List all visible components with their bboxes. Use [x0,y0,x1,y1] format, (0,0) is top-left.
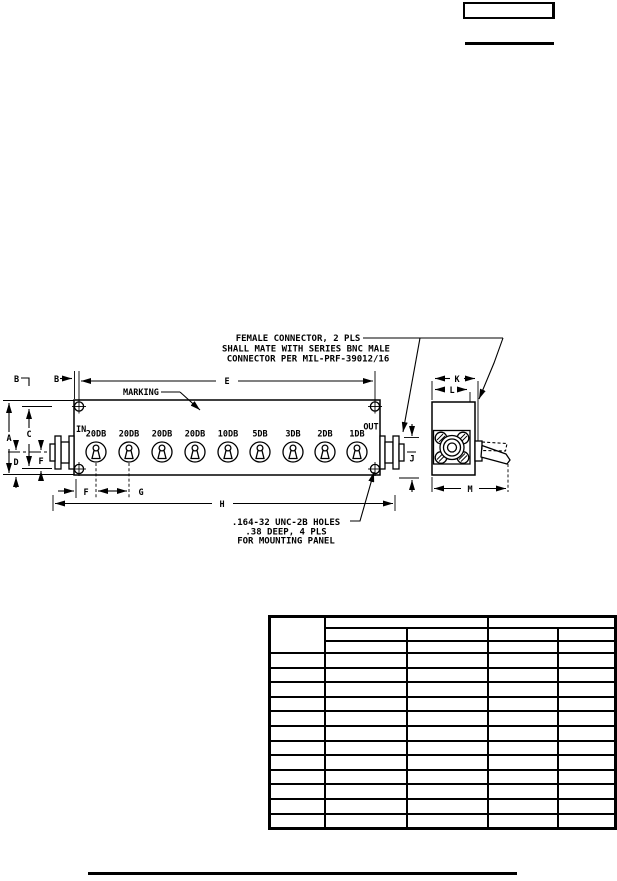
dimension-e: E [81,371,375,403]
dim-label-j: J [409,455,414,465]
dim-label-b: B [54,375,59,385]
in-label: IN [76,425,86,435]
dimensions-table-container [268,615,617,830]
table-cell [488,697,558,712]
table-cell [407,799,488,814]
dim-label-m: M [467,485,472,495]
dimension-h: H [53,495,395,511]
switch-label: 1DB [349,430,364,440]
note-line: FEMALE CONNECTOR, 2 PLS [236,334,361,344]
dim-label-l: L [449,386,454,396]
toggle-switch [283,442,303,462]
table-cell [558,799,616,814]
table-cell [407,755,488,770]
table-group-header-cell [325,617,488,629]
dimension-d: D [13,441,18,488]
switch-label: 2DB [317,430,332,440]
table-cell [488,799,558,814]
switch-label: 3DB [285,430,300,440]
attenuator-side-view: K L [432,375,510,495]
toggle-switches [86,442,367,462]
toggle-switch [315,442,335,462]
note-line: FOR MOUNTING PANEL [237,537,335,547]
table-cell [325,799,407,814]
table-cell [558,668,616,683]
table-corner-cell [270,617,325,654]
table-row [270,726,616,741]
dim-label-b: B [14,375,19,385]
toggle-switch [250,442,270,462]
table-row [270,741,616,756]
table-cell [325,770,407,785]
table-row [270,770,616,785]
table-cell [488,784,558,799]
table-cell [325,726,407,741]
dim-label-f: F [83,488,88,498]
table-cell [270,682,325,697]
table-cell [407,770,488,785]
table-cell [558,711,616,726]
table-cell [488,726,558,741]
leader-to-out-connector [403,338,420,432]
table-row [270,814,616,829]
mounting-holes-note: .164-32 UNC-2B HOLES .38 DEEP, 4 PLS FOR… [232,472,374,547]
switch-label: 5DB [252,430,267,440]
table-cell [558,755,616,770]
footer-rule [88,872,517,875]
table-cell [488,814,558,829]
dim-label-e: E [224,377,229,387]
table-cell [488,770,558,785]
note-line: .164-32 UNC-2B HOLES [232,518,340,528]
toggle-switch [347,442,367,462]
dim-label-h: H [219,500,224,510]
table-cell [488,711,558,726]
table-cell [488,741,558,756]
dim-label-d: D [13,458,18,468]
dim-label-g: G [138,488,143,498]
note-line: SHALL MATE WITH SERIES BNC MALE [222,345,390,355]
table-subheader-cell [558,641,616,653]
table-subheader-cell [407,628,488,641]
table-cell [325,814,407,829]
toggle-lever [481,446,510,465]
table-cell [270,653,325,668]
table-cell [270,726,325,741]
dimensions-table-body [270,617,616,829]
table-cell [558,784,616,799]
toggle-switch [152,442,172,462]
bnc-jack-face [440,436,464,460]
switch-label: 20DB [152,430,172,440]
table-cell [558,697,616,712]
table-subheader-cell [488,628,558,641]
toggle-switch [218,442,238,462]
table-header-row [270,617,616,629]
table-cell [270,770,325,785]
table-subheader-cell [558,628,616,641]
table-cell [270,711,325,726]
table-cell [488,682,558,697]
document-page: FEMALE CONNECTOR, 2 PLS SHALL MATE WITH … [0,0,617,881]
table-row [270,799,616,814]
switch-label: 20DB [119,430,139,440]
table-subheader-cell [325,628,407,641]
table-subheader-cell [407,641,488,653]
table-row [270,711,616,726]
table-group-header-cell [488,617,616,629]
table-subheader-cell [325,641,407,653]
table-row [270,668,616,683]
table-cell [270,755,325,770]
switch-labels: 20DB 20DB 20DB 20DB 10DB 5DB 3DB 2DB 1DB [86,430,365,440]
table-cell [407,814,488,829]
table-cell [270,741,325,756]
table-cell [407,741,488,756]
in-bnc-connector [50,436,74,469]
table-cell [558,726,616,741]
table-cell [558,770,616,785]
table-cell [325,697,407,712]
table-cell [325,682,407,697]
table-row [270,755,616,770]
table-cell [407,726,488,741]
table-cell [325,711,407,726]
toggle-switch [185,442,205,462]
marking-label: MARKING [123,388,159,398]
table-cell [558,653,616,668]
table-cell [325,668,407,683]
dim-label-f: F [38,457,43,467]
table-cell [325,741,407,756]
table-cell [558,814,616,829]
toggle-switch [119,442,139,462]
dimension-c: C [22,407,52,469]
switch-label: 10DB [218,430,238,440]
table-cell [488,653,558,668]
out-bnc-connector [380,436,404,469]
table-cell [325,755,407,770]
table-cell [270,697,325,712]
table-row [270,697,616,712]
note-line: CONNECTOR PER MIL-PRF-39012/16 [227,355,390,365]
toggle-switch [86,442,106,462]
table-cell [407,668,488,683]
table-cell [270,668,325,683]
table-row [270,784,616,799]
dimensions-table [268,615,617,830]
leader-to-screw-hole [350,472,374,521]
dim-label-k: K [454,375,460,385]
table-row [270,653,616,668]
table-cell [558,741,616,756]
dimension-f-vertical: F [38,441,43,481]
out-label: OUT [363,423,378,433]
table-cell [325,653,407,668]
table-cell [325,784,407,799]
dimension-b-left: B [14,375,29,386]
table-cell [488,668,558,683]
leader-to-side-view [479,338,503,399]
table-cell [270,814,325,829]
table-cell [270,799,325,814]
switch-label: 20DB [86,430,106,440]
dimension-b: B [54,371,79,403]
table-cell [488,755,558,770]
table-cell [558,682,616,697]
table-cell [407,682,488,697]
table-cell [407,697,488,712]
table-cell [270,784,325,799]
table-cell [407,653,488,668]
table-subheader-cell [488,641,558,653]
table-cell [407,784,488,799]
table-cell [407,711,488,726]
dim-label-a: A [6,434,11,444]
dim-label-c: C [26,430,31,440]
attenuator-front-view: IN OUT 20DB 20DB 20DB 20DB 10DB [8,400,416,477]
switch-label: 20DB [185,430,205,440]
table-row [270,682,616,697]
